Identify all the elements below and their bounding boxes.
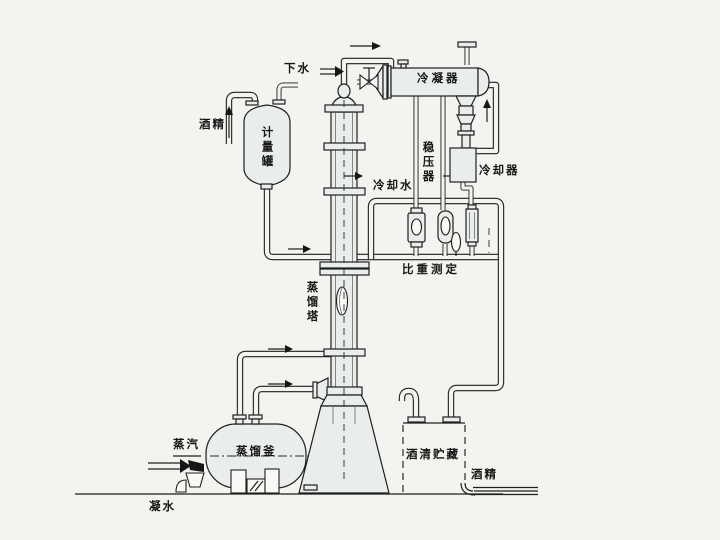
label-cooling-water: 冷却水 — [373, 181, 414, 193]
diagram-canvas — [0, 0, 720, 540]
label-alcohol-out: 酒精 — [471, 470, 498, 482]
drain-foot — [304, 485, 317, 490]
flow-arrow-top — [350, 42, 381, 50]
column-flange — [324, 349, 365, 356]
flow-indicator — [408, 208, 425, 247]
label-distillation-still: 蒸馏釜 — [236, 447, 277, 459]
tank-outlet-flange — [261, 184, 272, 189]
tank-nozzle — [246, 101, 258, 105]
up-flow-arrow — [483, 99, 491, 122]
outlet-pipe — [461, 483, 538, 495]
label-specific-gravity: 比重测定 — [402, 265, 460, 277]
valve-icon — [360, 68, 378, 89]
expansion-bellows — [456, 96, 476, 148]
column-dome-bulb — [338, 84, 350, 98]
column-flange — [320, 262, 369, 268]
label-pressure-stabilizer: 稳压器 — [421, 141, 433, 185]
steam-trap — [173, 456, 204, 492]
condenser-vessel — [360, 42, 489, 99]
stabilizer-tube — [438, 211, 453, 243]
tank-nozzle — [273, 100, 285, 104]
tank-inlet-flange — [443, 417, 460, 422]
label-spirit-storage: 酒清贮藏 — [406, 450, 460, 462]
label-cooler: 冷却器 — [479, 166, 520, 178]
drain-water-arrow — [320, 66, 344, 77]
label-condensate: 凝水 — [149, 502, 176, 514]
distillation-diagram: 下水 冷凝器 酒精 计量罐 稳压器 冷却水 冷却器 比重测定 蒸馏塔 蒸馏釜 蒸… — [0, 0, 720, 540]
vent-flange — [458, 42, 476, 47]
label-condenser: 冷凝器 — [417, 74, 461, 86]
sample-cylinder — [466, 205, 478, 246]
column-collar — [327, 387, 362, 395]
tank-feed-arrow — [288, 245, 311, 253]
cooler-box — [450, 148, 476, 182]
tank-inlet-flange — [408, 417, 425, 422]
label-measuring-tank: 计量罐 — [260, 126, 272, 170]
label-alcohol-in: 酒精 — [199, 120, 226, 132]
column-flange — [320, 269, 369, 275]
column-flange — [324, 143, 365, 150]
label-steam: 蒸汽 — [173, 440, 200, 452]
steam-arrow — [148, 459, 191, 473]
label-distillation-column: 蒸馏塔 — [305, 281, 317, 325]
sight-glass — [337, 287, 348, 315]
column-flange — [324, 188, 365, 195]
hydrometer-float — [452, 233, 461, 257]
label-drain-water: 下水 — [284, 64, 311, 76]
